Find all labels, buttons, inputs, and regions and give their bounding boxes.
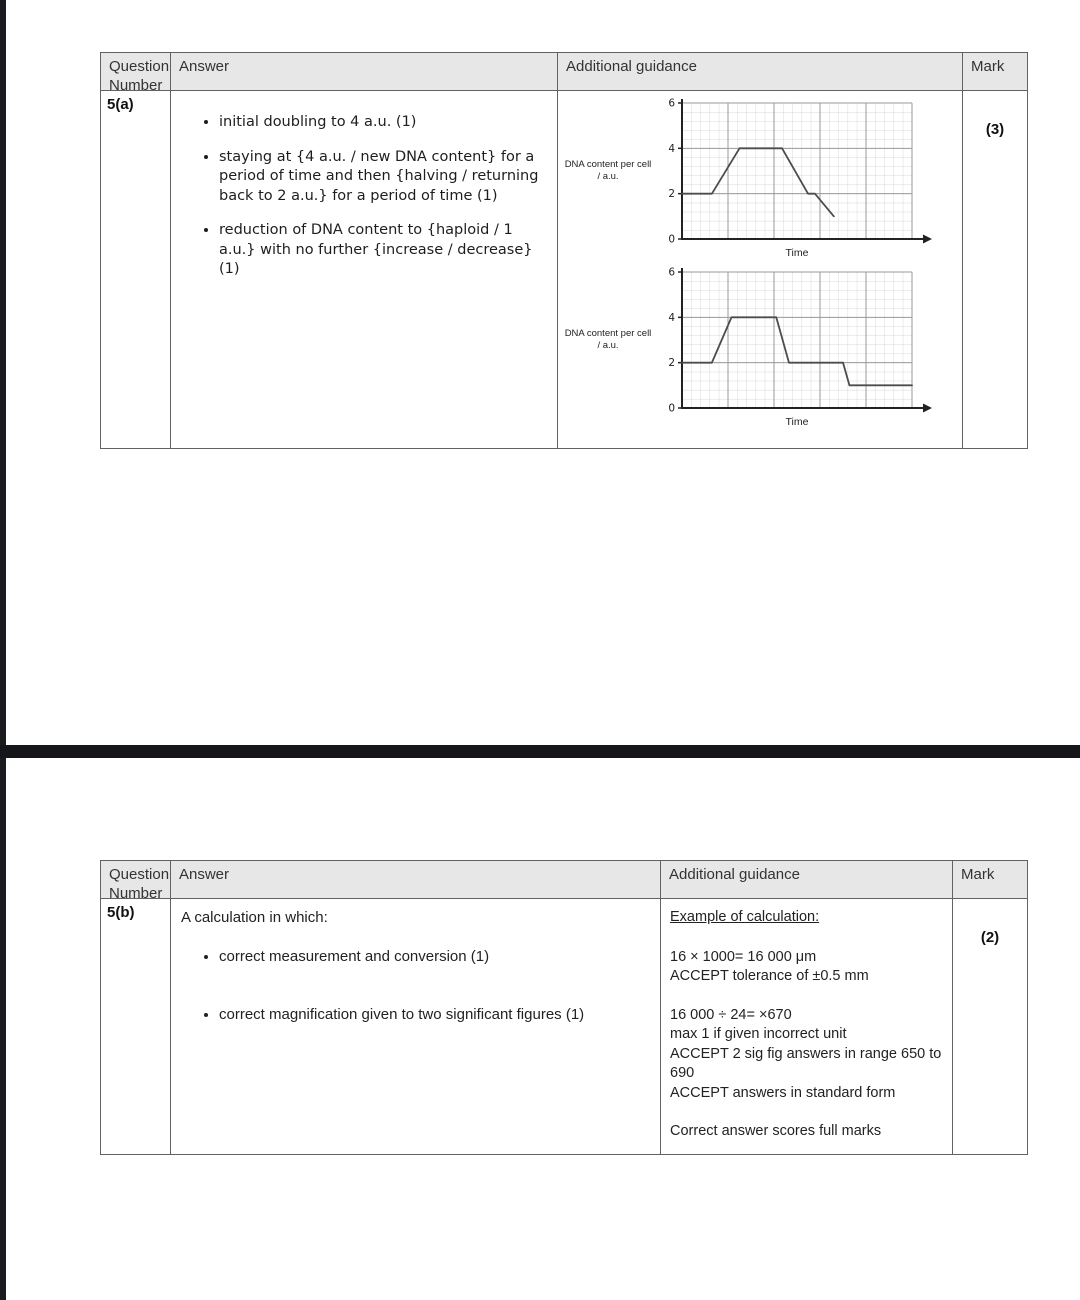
question-number-cell: 5(a) xyxy=(101,91,171,448)
svg-text:6: 6 xyxy=(668,267,675,279)
x-axis-label: Time xyxy=(682,247,912,259)
header-answer: Answer xyxy=(171,53,558,91)
mark-cell: (3) xyxy=(963,91,1027,448)
guidance-group: Correct answer scores full marks xyxy=(670,1122,948,1142)
answer-intro: A calculation in which: xyxy=(181,908,650,928)
header-mark: Mark xyxy=(963,53,1027,91)
dna-content-graph-2: 0246 xyxy=(656,265,934,415)
svg-text:2: 2 xyxy=(668,357,675,369)
mark-scheme-table-5a: Question Number Answer Additional guidan… xyxy=(100,52,1028,449)
dna-content-graph-1: 0246 xyxy=(656,96,934,246)
header-additional-guidance: Additional guidance xyxy=(558,53,963,91)
guidance-line: ACCEPT 2 sig fig answers in range 650 to… xyxy=(670,1045,948,1084)
answer-cell: A calculation in which: correct measurem… xyxy=(171,899,661,1154)
answer-bullet: initial doubling to 4 a.u. (1) xyxy=(219,113,553,133)
guidance-line: ACCEPT answers in standard form xyxy=(670,1084,948,1104)
dna-graph-block-1: DNA content per cell / a.u. 0246 Time xyxy=(560,96,962,259)
svg-text:0: 0 xyxy=(668,234,675,246)
guidance-line: 16 000 ÷ 24= ×670 xyxy=(670,1006,948,1026)
mark-cell: (2) xyxy=(953,899,1027,1154)
guidance-cell: Example of calculation: 16 × 1000= 16 00… xyxy=(661,899,953,1154)
dna-graph-block-2: DNA content per cell / a.u. 0246 Time xyxy=(560,265,962,428)
answer-cell: initial doubling to 4 a.u. (1) staying a… xyxy=(171,91,558,448)
svg-text:6: 6 xyxy=(668,98,675,110)
page-break-bar xyxy=(0,745,1080,758)
answer-bullet: correct magnification given to two signi… xyxy=(219,1005,650,1025)
document-page: Question Number Answer Additional guidan… xyxy=(0,0,1080,1300)
header-additional-guidance: Additional guidance xyxy=(661,861,953,899)
guidance-line: ACCEPT tolerance of ±0.5 mm xyxy=(670,967,948,987)
x-axis-label: Time xyxy=(682,416,912,428)
svg-text:4: 4 xyxy=(668,143,675,155)
svg-text:2: 2 xyxy=(668,188,675,200)
answer-bullet: staying at {4 a.u. / new DNA content} fo… xyxy=(219,148,553,207)
mark-scheme-table-5b: Question Number Answer Additional guidan… xyxy=(100,860,1028,1155)
answer-bullet: correct measurement and conversion (1) xyxy=(219,947,650,967)
page-edge-strip xyxy=(0,0,6,1300)
header-question-number: Question Number xyxy=(101,53,171,91)
guidance-group: 16 × 1000= 16 000 μm ACCEPT tolerance of… xyxy=(670,948,948,987)
y-axis-label: DNA content per cell / a.u. xyxy=(560,159,656,183)
answer-bullet: reduction of DNA content to {haploid / 1… xyxy=(219,221,553,280)
question-number-cell: 5(b) xyxy=(101,899,171,1154)
header-mark: Mark xyxy=(953,861,1027,899)
guidance-title: Example of calculation: xyxy=(670,908,948,928)
y-axis-label: DNA content per cell / a.u. xyxy=(560,328,656,352)
guidance-line: max 1 if given incorrect unit xyxy=(670,1025,948,1045)
guidance-line: Correct answer scores full marks xyxy=(670,1122,948,1142)
answer-bullet-list: correct measurement and conversion (1) c… xyxy=(181,947,650,1025)
header-answer: Answer xyxy=(171,861,661,899)
guidance-cell: DNA content per cell / a.u. 0246 Time DN… xyxy=(558,91,963,448)
svg-text:0: 0 xyxy=(668,403,675,415)
guidance-line: 16 × 1000= 16 000 μm xyxy=(670,948,948,968)
header-question-number: Question Number xyxy=(101,861,171,899)
guidance-group: 16 000 ÷ 24= ×670 max 1 if given incorre… xyxy=(670,1006,948,1104)
svg-text:4: 4 xyxy=(668,312,675,324)
answer-bullet-list: initial doubling to 4 a.u. (1) staying a… xyxy=(171,113,557,280)
